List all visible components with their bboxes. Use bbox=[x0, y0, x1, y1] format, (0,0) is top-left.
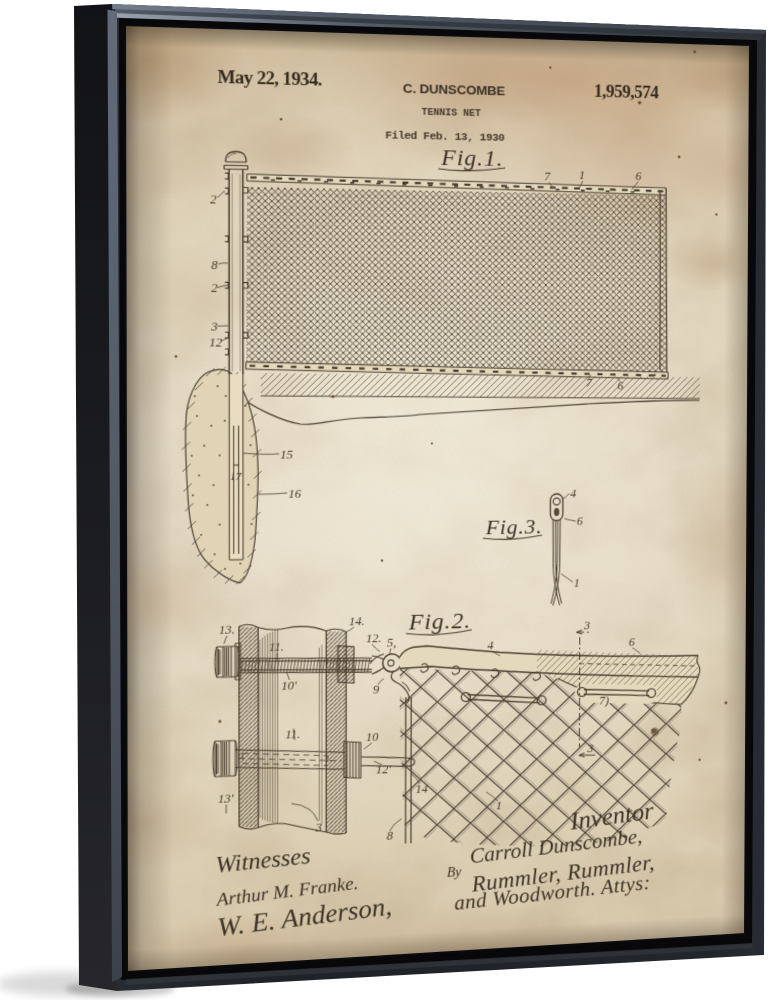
svg-text:By: By bbox=[447, 865, 462, 880]
svg-text:3: 3 bbox=[583, 618, 590, 632]
svg-text:4: 4 bbox=[487, 638, 494, 652]
svg-text:6: 6 bbox=[629, 635, 635, 649]
svg-text:13': 13' bbox=[218, 791, 234, 806]
svg-text:17: 17 bbox=[230, 471, 243, 483]
svg-text:12: 12 bbox=[209, 335, 222, 349]
svg-text:11.: 11. bbox=[269, 639, 284, 654]
svg-text:7: 7 bbox=[544, 169, 551, 183]
svg-text:C. DUNSCOMBE: C. DUNSCOMBE bbox=[403, 80, 505, 98]
svg-text:Witnesses: Witnesses bbox=[215, 843, 311, 878]
svg-text:6: 6 bbox=[635, 169, 641, 183]
svg-text:16: 16 bbox=[288, 486, 301, 500]
svg-text:1,959,574: 1,959,574 bbox=[594, 82, 660, 103]
svg-text:6: 6 bbox=[617, 379, 623, 393]
svg-text:Fig.1.: Fig.1. bbox=[440, 145, 503, 171]
svg-text:TENNIS NET: TENNIS NET bbox=[422, 107, 481, 120]
svg-text:1: 1 bbox=[574, 576, 580, 590]
svg-text:5,: 5, bbox=[387, 635, 396, 649]
svg-text:Fig.3.: Fig.3. bbox=[485, 515, 543, 539]
svg-text:1: 1 bbox=[579, 168, 585, 182]
svg-text:10: 10 bbox=[366, 730, 379, 744]
svg-text:7): 7) bbox=[599, 693, 609, 707]
svg-text:3: 3 bbox=[587, 741, 594, 755]
svg-text:2: 2 bbox=[211, 281, 218, 295]
svg-text:8: 8 bbox=[211, 258, 218, 272]
svg-text:9: 9 bbox=[373, 682, 380, 696]
svg-text:May 22, 1934.: May 22, 1934. bbox=[218, 68, 322, 91]
svg-text:3: 3 bbox=[315, 820, 323, 834]
svg-text:4: 4 bbox=[570, 486, 577, 500]
svg-text:14: 14 bbox=[415, 781, 428, 795]
svg-text:3: 3 bbox=[210, 320, 218, 334]
svg-text:2: 2 bbox=[210, 192, 217, 206]
svg-text:12': 12' bbox=[376, 762, 391, 777]
svg-text:13.: 13. bbox=[219, 622, 235, 637]
svg-text:14.: 14. bbox=[349, 614, 365, 628]
svg-text:Filed Feb. 13, 1930: Filed Feb. 13, 1930 bbox=[385, 129, 505, 145]
svg-text:10': 10' bbox=[281, 678, 297, 693]
svg-text:11.: 11. bbox=[285, 727, 300, 742]
svg-text:6: 6 bbox=[577, 514, 583, 528]
svg-text:15: 15 bbox=[280, 447, 293, 461]
svg-text:12.: 12. bbox=[366, 631, 382, 645]
